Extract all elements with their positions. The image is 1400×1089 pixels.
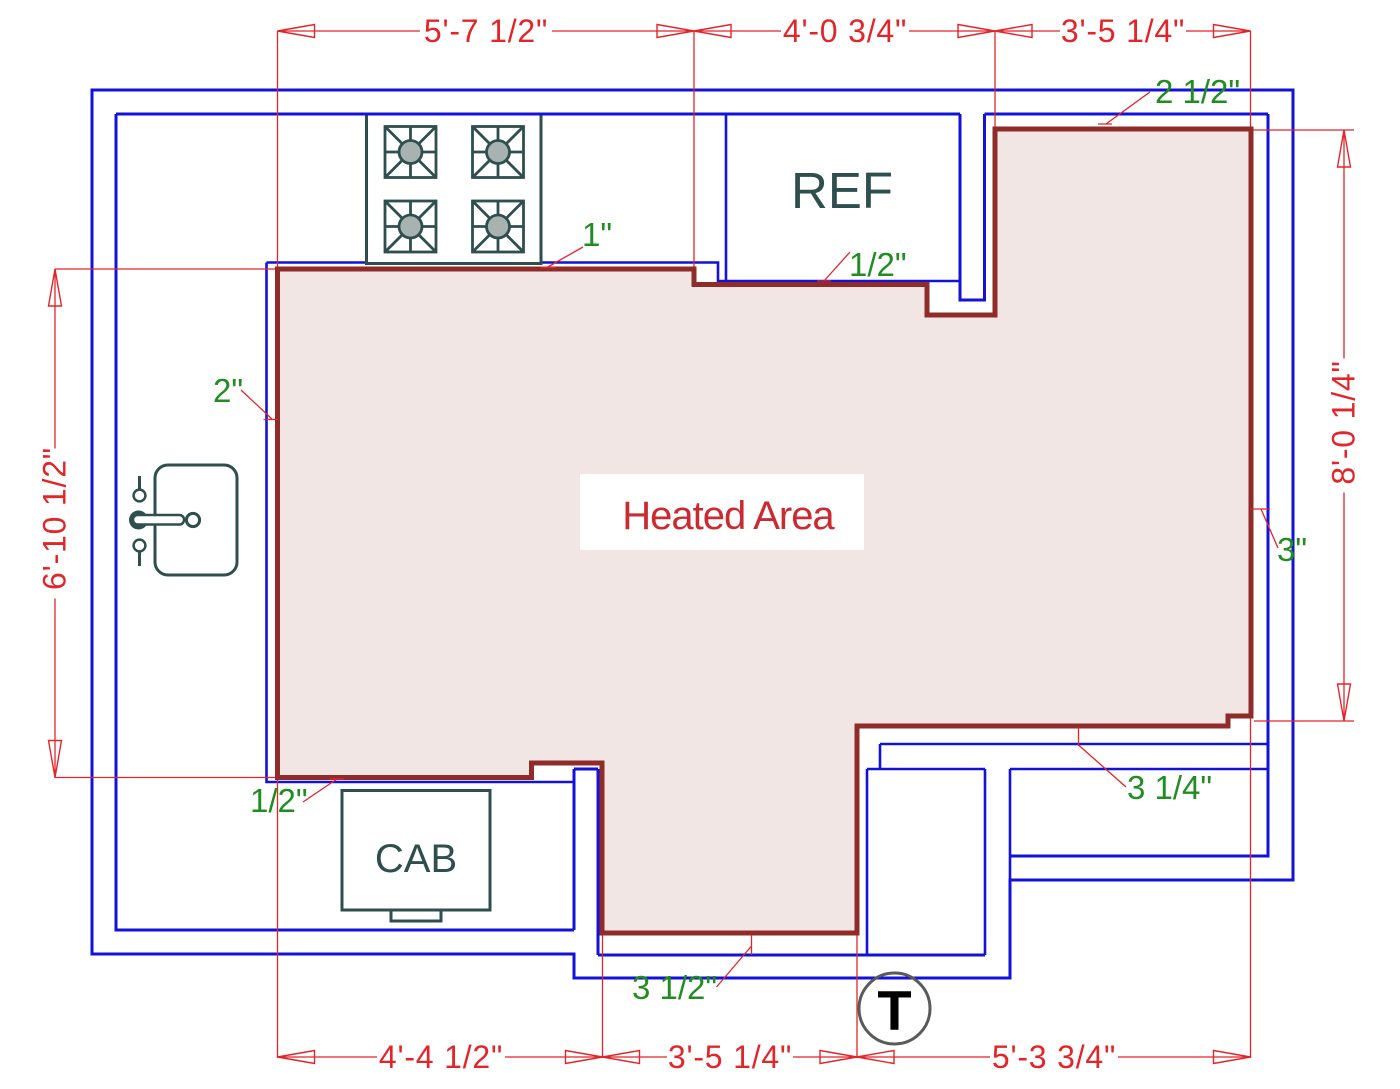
svg-text:Heated Area: Heated Area [622,494,835,538]
svg-text:3": 3" [1277,531,1307,568]
svg-text:2": 2" [213,372,243,409]
svg-text:1/2": 1/2" [250,782,308,819]
svg-text:5'-7 1/2": 5'-7 1/2" [424,13,548,49]
svg-text:4'-0 3/4": 4'-0 3/4" [783,13,907,49]
svg-text:3'-5 1/4": 3'-5 1/4" [1061,13,1185,49]
svg-text:6'-10 1/2": 6'-10 1/2" [37,447,73,590]
svg-text:REF: REF [791,162,893,219]
svg-text:3 1/4": 3 1/4" [1127,769,1212,806]
svg-text:2 1/2": 2 1/2" [1155,73,1240,110]
svg-text:8'-0 1/4": 8'-0 1/4" [1326,360,1362,484]
svg-text:4'-4 1/2": 4'-4 1/2" [379,1039,503,1075]
svg-text:1/2": 1/2" [849,246,907,283]
svg-text:T: T [877,979,911,1042]
svg-text:1": 1" [582,216,612,253]
svg-text:3 1/2": 3 1/2" [632,969,717,1006]
svg-text:3'-5 1/4": 3'-5 1/4" [668,1039,792,1075]
svg-text:5'-3 3/4": 5'-3 3/4" [992,1039,1116,1075]
svg-text:CAB: CAB [375,837,457,881]
